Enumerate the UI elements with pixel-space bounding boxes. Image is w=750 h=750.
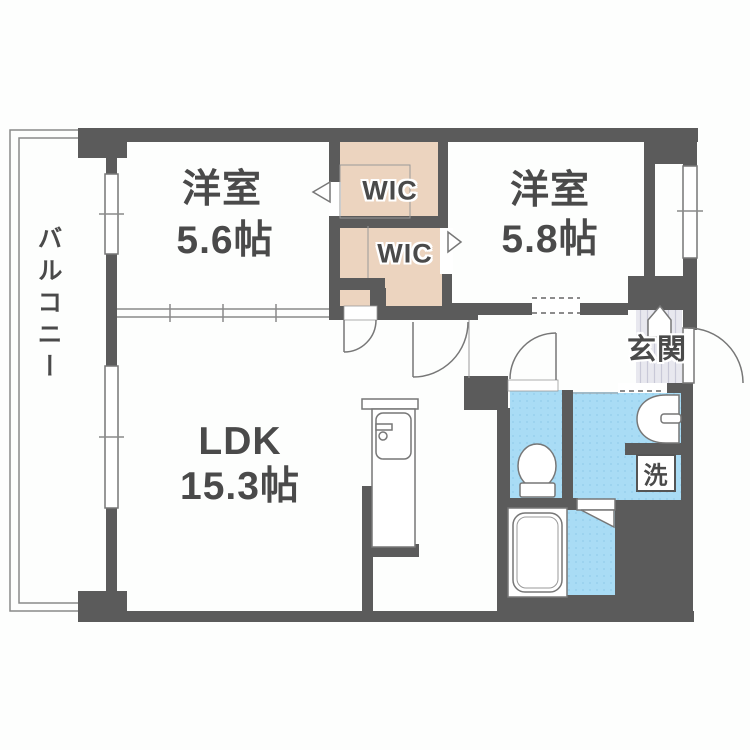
entrance-door xyxy=(683,328,743,383)
kitchen-faucet-icon xyxy=(376,424,392,430)
wic2-floor-ext2 xyxy=(338,288,370,308)
bedroom1-name-label: 洋室 xyxy=(182,158,262,214)
window-bedroom2 xyxy=(677,166,703,258)
ldk-hall-door xyxy=(413,320,469,378)
washbasin xyxy=(637,395,681,443)
bedroom2-hall-opening xyxy=(532,296,580,315)
wic2-floor-ext xyxy=(385,278,444,308)
bedroom2-name-label: 洋室 xyxy=(510,159,590,215)
kitchen-knob-icon xyxy=(379,432,387,440)
window-ldk xyxy=(99,366,124,508)
closet-door xyxy=(344,306,377,352)
wic1-door-direction-triangle-icon xyxy=(313,182,330,202)
toilet-door xyxy=(508,333,558,391)
bathtub xyxy=(508,508,567,597)
floor-plan-drawing xyxy=(0,0,750,750)
bedroom1-size-label: 5.6帖 xyxy=(176,209,273,265)
floor-plan: 洋室 5.6帖 WIC WIC 洋室 5.8帖 バルコニー LDK 15.3帖 … xyxy=(0,0,750,750)
balcony-label: バルコニー xyxy=(30,225,66,385)
window-bedroom1 xyxy=(99,174,124,254)
laundry-label: 洗 xyxy=(644,456,669,491)
toilet xyxy=(518,444,556,497)
wic1-label: WIC xyxy=(362,176,417,207)
entrance-label: 玄関 xyxy=(627,326,687,368)
ldk-size-label: 15.3帖 xyxy=(180,455,300,511)
wic2-label: WIC xyxy=(377,239,432,270)
wic2-door-direction-triangle-icon xyxy=(448,232,461,252)
wic1-doorway xyxy=(329,182,341,216)
washbasin-tap-icon xyxy=(661,414,681,423)
bedroom2-size-label: 5.8帖 xyxy=(501,208,598,264)
sliding-partition xyxy=(117,304,329,322)
